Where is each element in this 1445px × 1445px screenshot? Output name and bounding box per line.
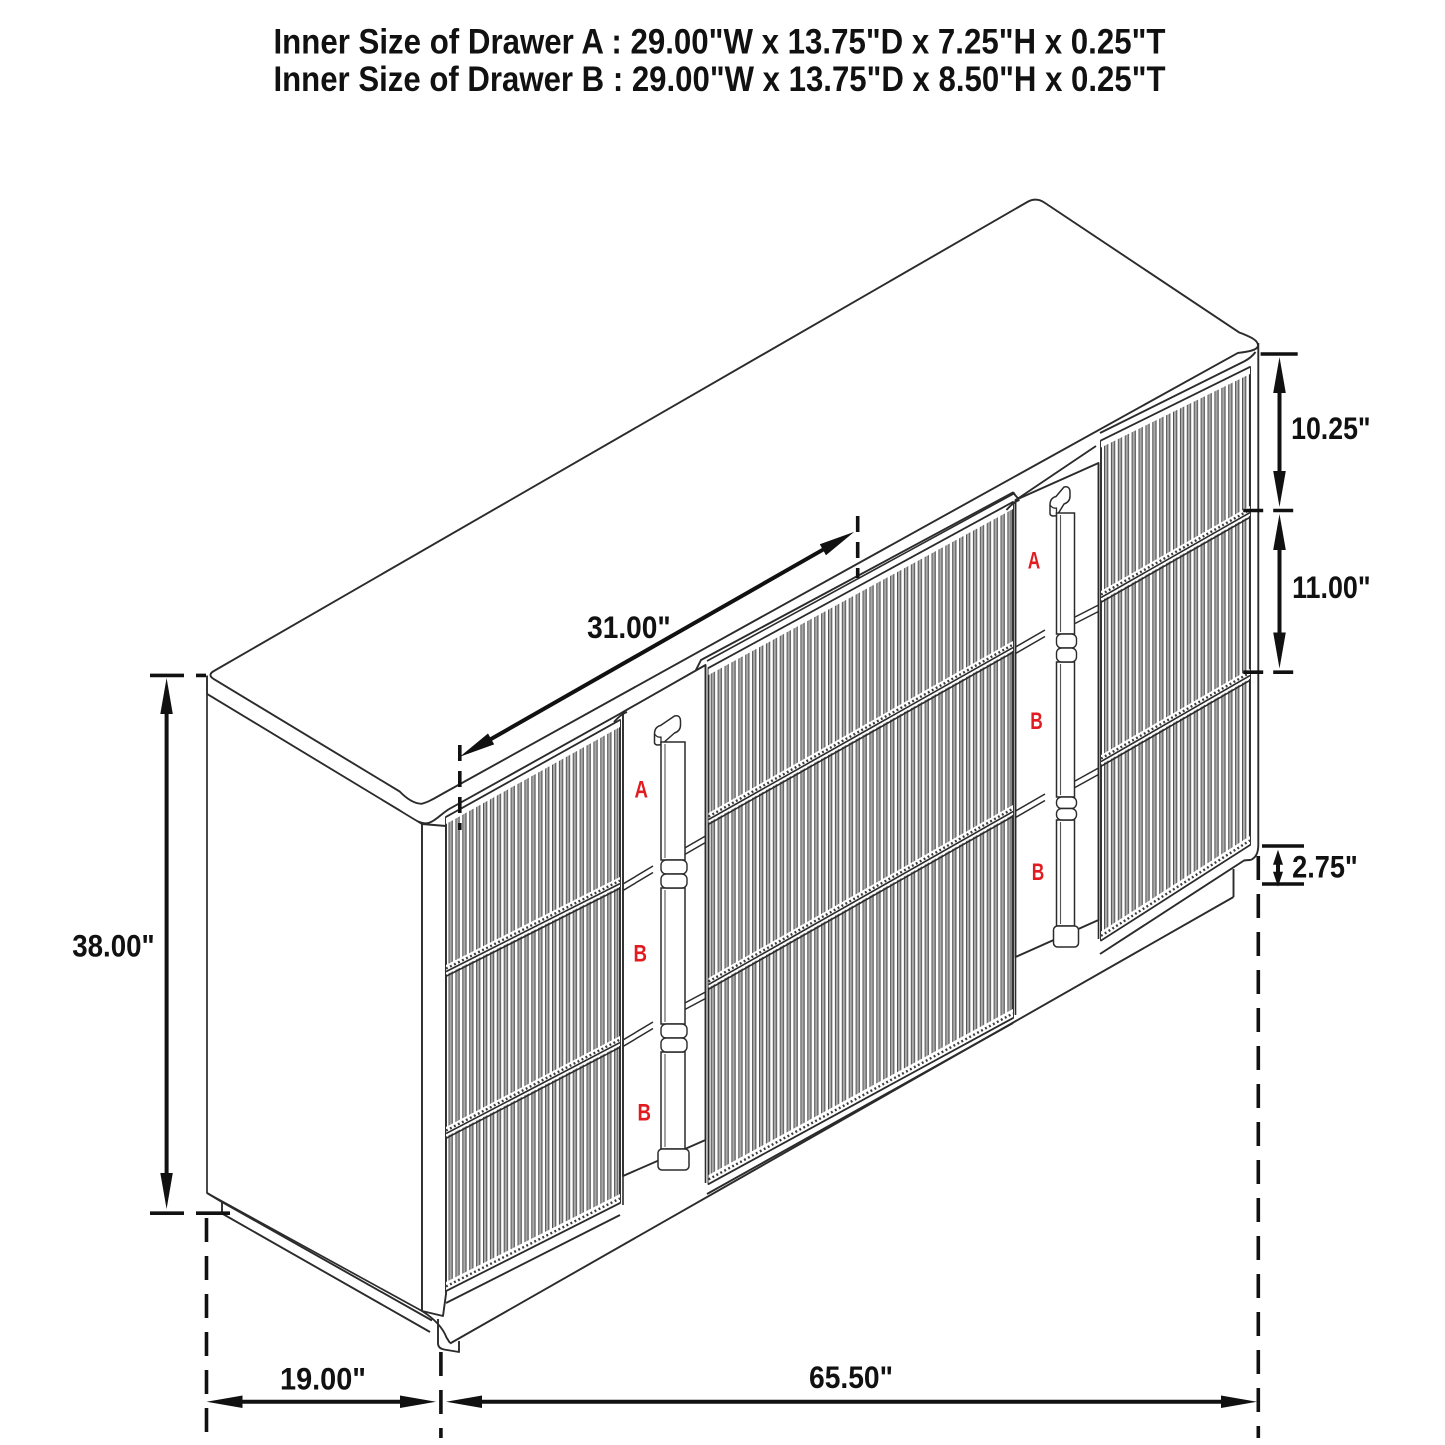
- svg-text:A: A: [1028, 547, 1041, 574]
- svg-text:10.25": 10.25": [1291, 411, 1371, 446]
- svg-text:B: B: [634, 940, 648, 967]
- svg-text:B: B: [638, 1100, 652, 1127]
- svg-text:A: A: [635, 776, 649, 803]
- svg-text:B: B: [1032, 859, 1045, 886]
- svg-text:Inner Size of Drawer A : 29.00: Inner Size of Drawer A : 29.00"W x 13.75…: [274, 21, 1166, 61]
- svg-text:2.75": 2.75": [1292, 849, 1358, 884]
- svg-text:65.50": 65.50": [809, 1360, 893, 1395]
- svg-text:11.00": 11.00": [1292, 570, 1371, 605]
- svg-text:19.00": 19.00": [280, 1362, 366, 1397]
- svg-text:Inner Size of Drawer B : 29.00: Inner Size of Drawer B : 29.00"W x 13.75…: [274, 59, 1166, 99]
- svg-text:31.00": 31.00": [587, 610, 671, 645]
- svg-text:B: B: [1030, 708, 1043, 735]
- svg-text:38.00": 38.00": [72, 929, 155, 964]
